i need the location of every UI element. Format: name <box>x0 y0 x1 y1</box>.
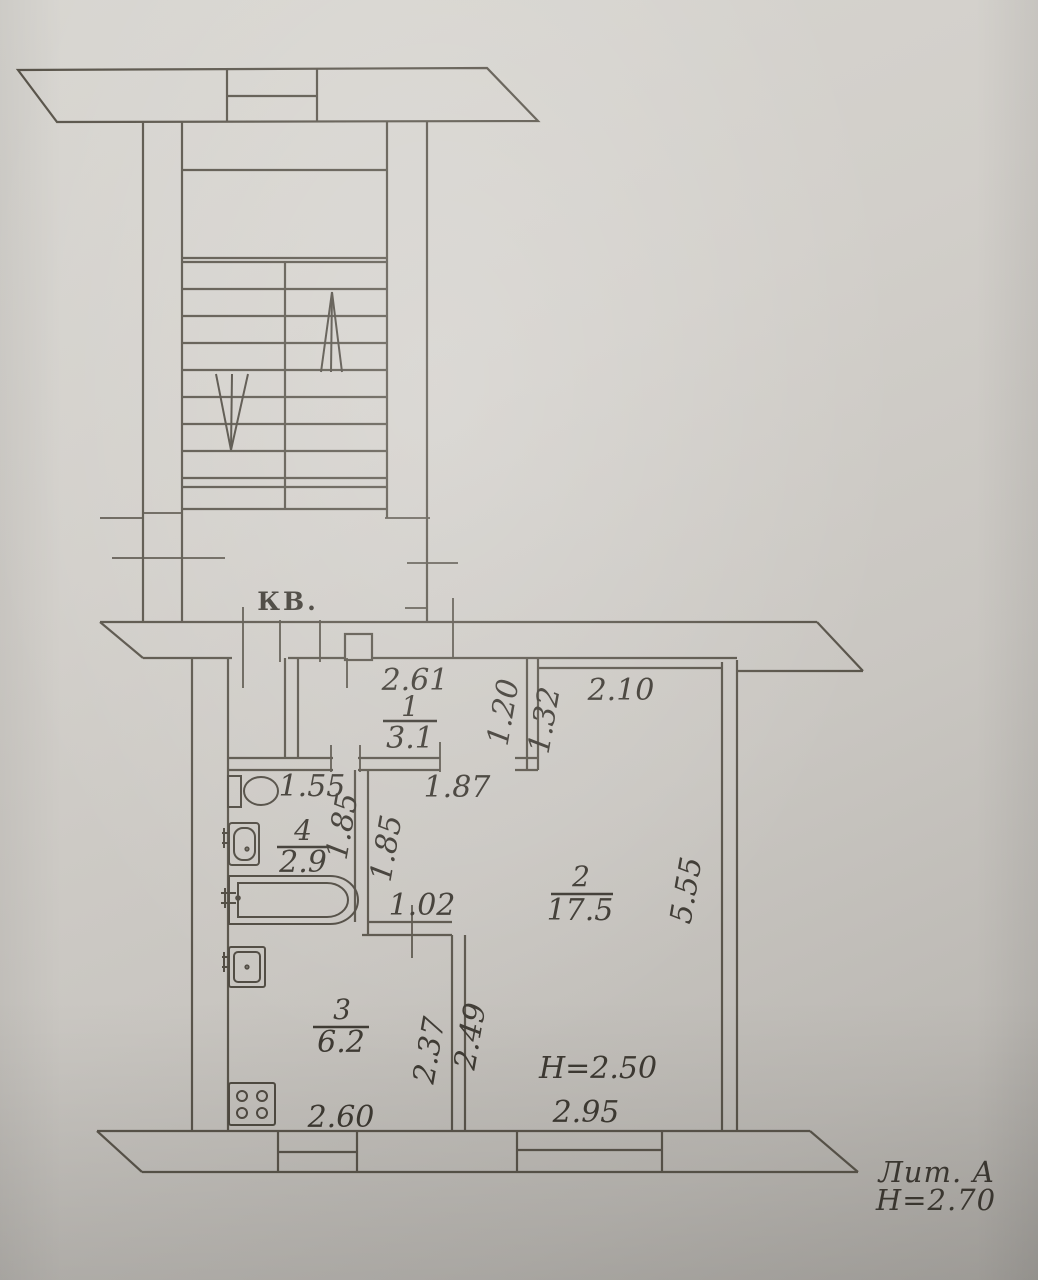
dimension-1-85-hall: 1.85 <box>364 812 410 884</box>
dimension-1-87: 1.87 <box>424 770 492 805</box>
dimension-2-95: 2.95 <box>552 1095 620 1130</box>
apartment-entrance-label: КВ. <box>257 587 319 616</box>
entrance-door <box>345 634 372 660</box>
bathtub-icon <box>221 876 358 924</box>
stairwell <box>100 121 458 622</box>
landing-window <box>227 69 317 121</box>
apartment-walls <box>97 658 858 1172</box>
room-2-number: 2 <box>571 860 590 893</box>
dimension-5-55: 5.55 <box>664 854 710 926</box>
stove-icon <box>229 1083 275 1125</box>
toilet-icon <box>228 776 278 807</box>
upper-break-wall <box>18 68 538 122</box>
room-1-area: 3.1 <box>386 721 434 756</box>
dimension-2-37: 2.37 <box>406 1014 452 1088</box>
room-2-label: 2 17.5 <box>547 860 614 928</box>
dimension-2-60: 2.60 <box>307 1100 375 1135</box>
room-2-area: 17.5 <box>547 893 614 928</box>
room-3-label: 3 6.2 <box>313 993 369 1060</box>
kitchen-fixtures <box>222 947 275 1125</box>
building-height-label: Н=2.70 <box>875 1183 996 1217</box>
dimension-2-49: 2.49 <box>447 1000 493 1073</box>
living-room-window <box>517 1131 662 1172</box>
room-3-number: 3 <box>333 993 351 1026</box>
floor-plan-drawing: КВ. 2.61 1 3.1 1.20 1.32 2.10 1.55 1.87 … <box>0 0 1038 1280</box>
dimension-1-32: 1.32 <box>522 684 568 756</box>
room-4-number: 4 <box>293 814 312 847</box>
kitchen-window <box>278 1131 357 1172</box>
entrance-wall-band <box>100 598 863 688</box>
stair-up-arrow <box>321 292 342 372</box>
scanned-floor-plan-sheet: КВ. 2.61 1 3.1 1.20 1.32 2.10 1.55 1.87 … <box>0 0 1038 1280</box>
dimension-1-20: 1.20 <box>481 676 527 748</box>
stair-treads <box>182 262 387 509</box>
stair-down-arrow <box>216 374 248 450</box>
kitchen-sink-icon <box>222 947 265 987</box>
dimension-2-10: 2.10 <box>587 673 655 708</box>
dimension-1-02: 1.02 <box>389 888 456 923</box>
room-1-number: 1 <box>401 690 419 723</box>
room-1-label: 1 3.1 <box>383 690 437 756</box>
room-4-label: 4 2.9 <box>277 814 331 880</box>
room-4-area: 2.9 <box>278 845 327 880</box>
room-3-area: 6.2 <box>317 1025 365 1060</box>
room-2-height-label: Н=2.50 <box>538 1051 657 1086</box>
